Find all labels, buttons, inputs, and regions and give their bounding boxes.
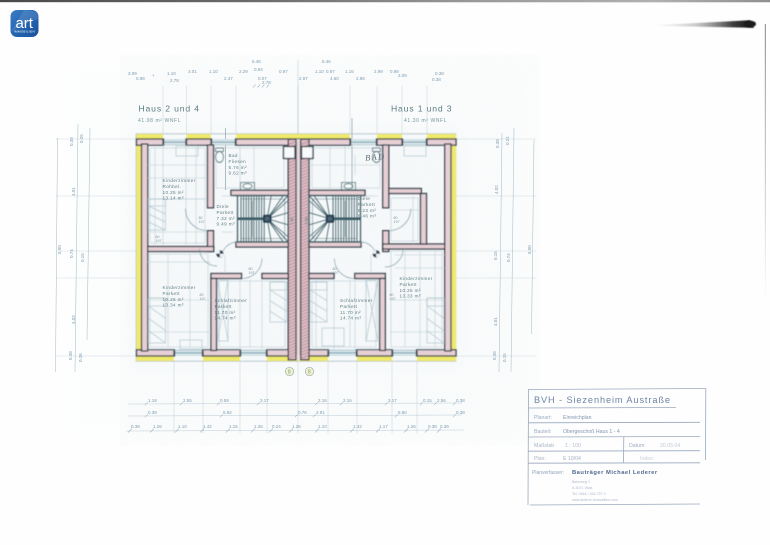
- svg-text:4.01: 4.01: [71, 187, 76, 196]
- svg-text:4.02: 4.02: [71, 315, 76, 324]
- svg-text:Bauträger Michael Lederer: Bauträger Michael Lederer: [572, 470, 658, 476]
- svg-text:A-5071 Wals: A-5071 Wals: [572, 486, 593, 490]
- svg-text:0.26: 0.26: [79, 134, 84, 143]
- svg-text:0.38: 0.38: [69, 137, 74, 146]
- svg-text:Obergeschoß Haus 1 - 4: Obergeschoß Haus 1 - 4: [563, 429, 620, 435]
- svg-text:Plan:: Plan:: [534, 456, 546, 462]
- svg-text:Bahnweg 1: Bahnweg 1: [572, 480, 590, 484]
- svg-text:Planart:: Planart:: [534, 415, 552, 421]
- svg-text:BVH - Siezenheim Austraße: BVH - Siezenheim Austraße: [534, 395, 671, 405]
- svg-text:5.90: 5.90: [57, 245, 62, 254]
- svg-text:Tel. 0664 / 434 757 0: Tel. 0664 / 434 757 0: [572, 492, 606, 496]
- svg-text:Planverfasser:: Planverfasser:: [532, 470, 564, 476]
- svg-text:0.38: 0.38: [68, 351, 73, 360]
- svg-text:IMMOBILIEN: IMMOBILIEN: [14, 30, 35, 34]
- svg-text:1 : 100: 1 : 100: [565, 443, 581, 449]
- svg-text:Bauteil:: Bauteil:: [534, 429, 551, 435]
- svg-text:Datum:: Datum:: [629, 443, 646, 449]
- svg-text:Einreichplan: Einreichplan: [563, 415, 592, 421]
- svg-text:www.lederer-immobilien.com: www.lederer-immobilien.com: [572, 498, 618, 502]
- svg-text:20.05.04: 20.05.04: [660, 443, 680, 449]
- svg-text:0.74: 0.74: [69, 249, 74, 258]
- svg-text:0.15: 0.15: [80, 253, 85, 262]
- svg-text:E 10/04: E 10/04: [563, 456, 581, 462]
- svg-text:0.26: 0.26: [78, 353, 83, 362]
- svg-text:Maßstab: Maßstab: [534, 443, 554, 449]
- svg-text:Index:: Index:: [640, 456, 654, 462]
